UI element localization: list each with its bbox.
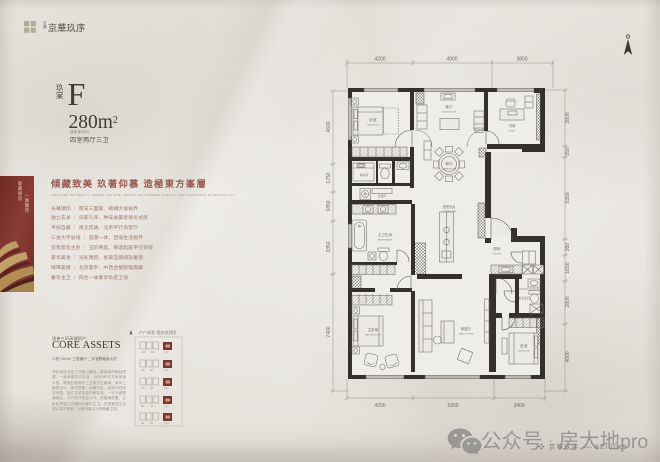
svg-text:KITCHEN: KITCHEN [492,254,502,256]
svg-text:3800: 3800 [516,57,527,63]
svg-text:F户: F户 [164,386,169,391]
svg-text:5300: 5300 [447,403,458,409]
svg-text:3F: 3F [141,421,145,425]
svg-text:淋浴间: 淋浴间 [360,173,369,177]
svg-text:4F: 4F [150,404,154,408]
svg-text:250: 250 [565,147,571,156]
svg-text:卧室: 卧室 [520,343,528,348]
svg-text:厨房: 厨房 [493,246,501,251]
svg-text:御藏阙境: 御藏阙境 [17,180,23,202]
svg-text:4900: 4900 [446,57,457,63]
svg-text:4200: 4200 [374,57,385,63]
svg-text:家庭厅: 家庭厅 [461,326,472,331]
svg-text:LIVING ROOM: LIVING ROOM [442,112,456,114]
svg-text:2800: 2800 [565,296,571,307]
svg-text:9F: 9F [141,368,145,372]
svg-text:7F: 7F [141,386,145,390]
svg-text:客卫生间: 客卫生间 [518,296,529,300]
svg-text:一脉臻序: 一脉臻序 [24,193,30,214]
svg-text:餐厅: 餐厅 [445,161,453,166]
svg-text:5350: 5350 [565,192,571,203]
svg-text:家政间: 家政间 [378,194,387,198]
svg-text:STUDY: STUDY [508,131,516,133]
svg-text:MASTER BATH: MASTER BATH [378,239,393,242]
svg-text:西厨岛台: 西厨岛台 [443,204,456,209]
svg-text:COOKING BAR: COOKING BAR [442,210,457,213]
svg-text:卧室: 卧室 [369,117,377,122]
svg-text:F户: F户 [164,404,169,409]
svg-text:主卧室: 主卧室 [368,327,379,332]
svg-text:10F: 10F [150,350,155,354]
svg-text:FAMILY ROOM: FAMILY ROOM [459,333,474,336]
svg-text:MASTER ROOM: MASTER ROOM [365,334,381,337]
svg-text:950: 950 [565,243,571,252]
svg-text:客厅: 客厅 [445,104,453,109]
svg-text:7400: 7400 [326,326,332,337]
svg-text:4000: 4000 [565,351,571,362]
svg-text:6F: 6F [150,386,154,390]
svg-text:BED ROOM: BED ROOM [518,351,530,353]
svg-text:2F: 2F [150,421,154,425]
svg-text:8F: 8F [150,368,154,372]
svg-text:5F: 5F [141,404,145,408]
svg-text:3350: 3350 [326,241,332,252]
svg-text:户户观景·楼座规划图: 户户观景·楼座规划图 [139,329,176,335]
svg-text:3800: 3800 [565,112,571,123]
svg-text:BED ROOM: BED ROOM [367,125,379,127]
svg-text:主卫生间: 主卫生间 [378,232,393,237]
svg-text:1650: 1650 [565,262,571,273]
svg-text:1850: 1850 [326,200,332,211]
svg-text:F户: F户 [164,350,169,355]
svg-text:12F: 12F [141,350,146,354]
svg-text:F户: F户 [164,421,169,426]
svg-text:3400: 3400 [513,403,524,409]
svg-text:4200: 4200 [374,403,385,409]
svg-text:1750: 1750 [326,172,332,183]
svg-text:DINING ROOM: DINING ROOM [442,169,457,171]
svg-text:4600: 4600 [326,121,332,132]
svg-text:F户: F户 [164,368,169,373]
svg-text:书房: 书房 [508,123,516,128]
